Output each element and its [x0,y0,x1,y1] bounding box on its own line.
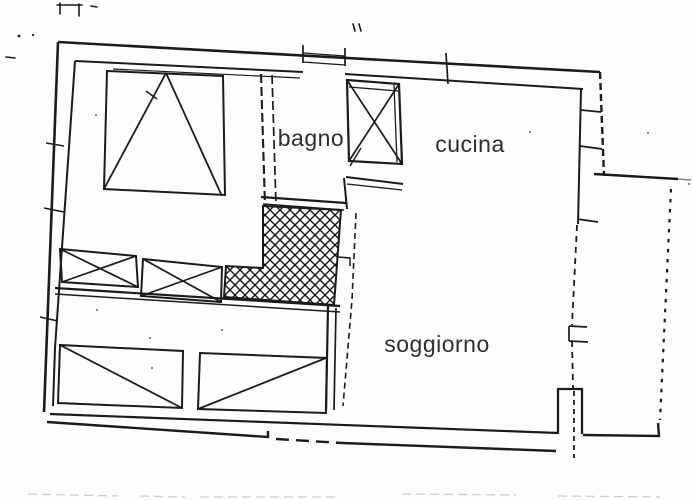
right-duct-dashed-line [572,225,577,388]
pillar [558,389,582,458]
scanned-floor-plan: bagno cucina soggiorno [0,0,693,500]
bed-2-diagonal [198,358,326,409]
bagno-bottom-wall [261,197,346,203]
speck-dot [95,114,97,116]
room-label-cucina: cucina [435,131,504,157]
floor-plan-canvas: bagno cucina soggiorno [0,0,693,500]
bagno-right-wall-stub [344,178,347,209]
bottom-wall-outer-right [342,443,556,451]
bottom-wall-outer-dashes [276,439,342,443]
bedroom-top-left [104,71,276,206]
bottom-wall [47,414,558,451]
furniture-square [104,71,225,195]
speck-dot [149,337,151,339]
speck-dot [221,329,223,331]
corridor-notch-mark [338,257,350,266]
bedroom-bagno-partition [261,74,265,206]
bed-1-diagonal [60,345,182,408]
right-wall-outer-dashed [600,72,604,176]
speck-dot [151,367,153,369]
corridor-right-dashed-line [343,213,356,406]
right-wall-inner [578,89,581,224]
speck-dot [18,35,21,38]
radiator-bracket [569,326,588,342]
balcony-window-dotted-line [660,189,671,420]
room-label-bagno: bagno [278,125,344,151]
bedroom-bagno-partition-inner [272,75,276,206]
pillar-outline [558,389,582,434]
bottom-wall-inner [50,414,558,433]
balcony-top-wall [594,174,678,179]
speck-dot [96,309,98,311]
bottom-scanner-noise [28,494,660,497]
furniture-square-triangle [104,73,221,194]
bottom-wall-outer [47,422,268,437]
balcony [583,174,691,436]
balcony-bottom-wall [583,423,659,436]
speck-dot [688,183,690,185]
scan-artifacts [6,3,690,497]
speck-dot [32,34,34,36]
right-wall [569,72,604,388]
camera-soggiorno-wall-inner [334,308,336,410]
balcony-top-wall-faint-tail [678,179,691,180]
room-label-soggiorno: soggiorno [384,331,490,357]
speck-dot [529,131,531,133]
speck-dot [647,132,649,134]
corridor-hatch-area [224,206,341,305]
below-shower-wall-inner [347,184,402,190]
below-shower-wall [346,177,403,184]
